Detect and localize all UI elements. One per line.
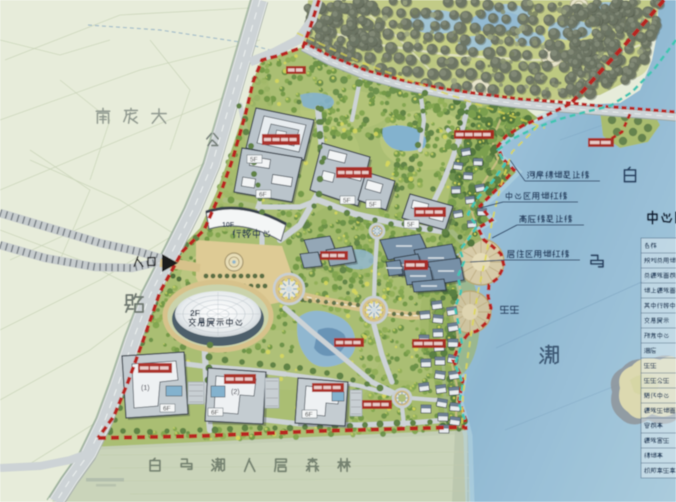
svg-text:6F: 6F <box>163 406 171 413</box>
svg-text:2F: 2F <box>190 308 200 318</box>
svg-text:5F: 5F <box>369 202 377 209</box>
svg-text:(2): (2) <box>231 389 240 396</box>
svg-text:6F: 6F <box>211 410 219 417</box>
svg-text:5F: 5F <box>407 222 415 229</box>
svg-text:10F: 10F <box>222 222 235 229</box>
svg-text:6F: 6F <box>305 412 313 419</box>
svg-text:5F: 5F <box>343 198 351 205</box>
svg-text:5F: 5F <box>250 157 258 164</box>
svg-text:6F: 6F <box>259 192 267 199</box>
svg-text:(1): (1) <box>141 385 150 392</box>
